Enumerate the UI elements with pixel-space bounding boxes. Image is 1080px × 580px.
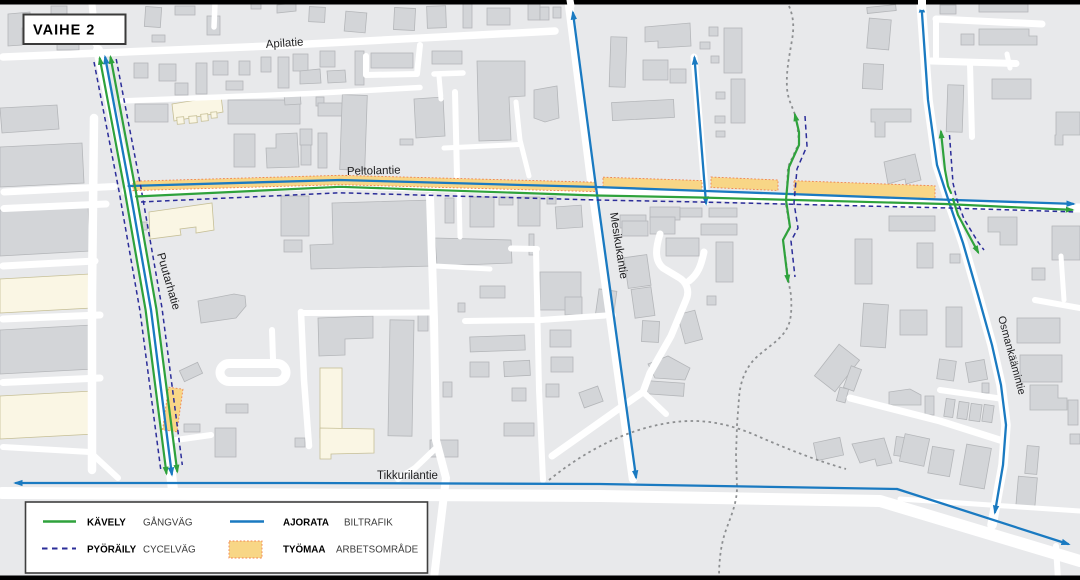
- svg-text:AJORATA: AJORATA: [283, 518, 329, 529]
- svg-text:BILTRAFIK: BILTRAFIK: [344, 518, 393, 529]
- svg-text:PYÖRÄILY: PYÖRÄILY: [87, 545, 137, 556]
- svg-text:ARBETSOMRÅDE: ARBETSOMRÅDE: [336, 545, 419, 556]
- svg-text:VAIHE 2: VAIHE 2: [33, 23, 95, 39]
- svg-text:KÄVELY: KÄVELY: [87, 518, 126, 529]
- svg-text:CYCELVÄG: CYCELVÄG: [143, 545, 196, 556]
- svg-text:Tikkurilantie: Tikkurilantie: [377, 470, 438, 482]
- svg-text:Peltolantie: Peltolantie: [347, 165, 401, 178]
- svg-text:GÅNGVÄG: GÅNGVÄG: [143, 518, 193, 529]
- svg-text:TYÖMAA: TYÖMAA: [283, 545, 325, 556]
